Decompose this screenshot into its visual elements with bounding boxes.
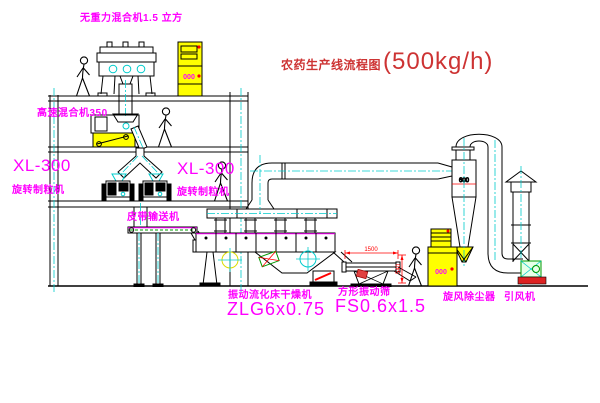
label-granulator-left-model: XL-300: [13, 157, 71, 176]
label-belt-conveyor: 皮带输送机: [127, 212, 180, 223]
label-screen-model: FS0.6x1.5: [335, 297, 426, 317]
fluid-bed-dryer: [193, 209, 352, 286]
person-second-floor: [159, 108, 172, 147]
control-cabinet-right: 000: [428, 229, 457, 286]
granulator-right: [139, 174, 171, 201]
control-cabinet-top: 000: [178, 42, 202, 96]
label-granulator-right-model: XL-300: [177, 160, 235, 179]
label-granulator-right-name: 旋转制粒机: [177, 187, 230, 198]
diagram-title: 农药生产线流程图 (500kg/h): [281, 48, 493, 76]
screen-length-dim: 1500: [364, 247, 378, 253]
cabinet-right-display: 000: [435, 269, 447, 276]
high-speed-mixer: [91, 114, 147, 150]
title-capacity: (500kg/h): [383, 48, 493, 76]
belt-conveyor: [128, 227, 206, 288]
gravity-mixer: [97, 42, 156, 118]
label-granulator-left-name: 旋转制粒机: [12, 185, 65, 196]
title-text: 农药生产线流程图: [281, 56, 381, 73]
screen-height-dim: 540: [396, 263, 402, 274]
process-flow-diagram: 000: [0, 0, 600, 403]
label-cyclone: 旋风除尘器: [443, 292, 496, 303]
label-high-speed-mixer: 高速混合机350: [37, 108, 108, 119]
person-top-floor: [77, 57, 90, 96]
exhaust-duct: [246, 155, 458, 214]
cabinet-top-display: 000: [183, 74, 195, 81]
label-draft-fan: 引风机: [504, 292, 536, 303]
label-dryer-model: ZLG6x0.75: [227, 300, 325, 320]
granulator-left: [102, 174, 134, 201]
draft-fan: [518, 261, 546, 284]
label-gravity-mixer: 无重力混合机1.5 立方: [80, 13, 183, 24]
